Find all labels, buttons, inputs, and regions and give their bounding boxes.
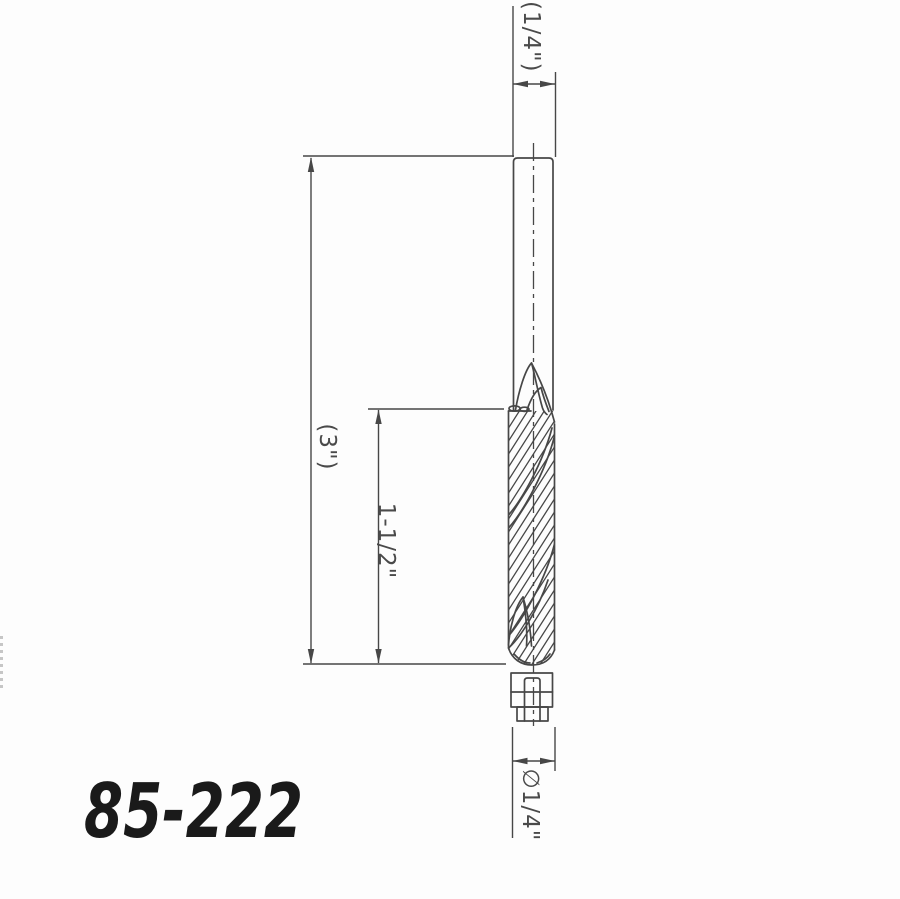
drawing-canvas: (1/4") (3") 1-1/2" ∅1/4" 85-222: [0, 0, 900, 899]
overall-length-dimension: [308, 157, 314, 664]
flute-length-label: 1-1/2": [374, 499, 398, 583]
router-bit-drawing: [0, 0, 900, 899]
hex-nut: [517, 707, 548, 721]
tip-diameter-label: ∅1/4": [518, 765, 542, 845]
tip-diameter-dimension: [513, 758, 556, 764]
shank-diameter-label: (1/4"): [519, 1, 543, 71]
part-number: 85-222: [84, 774, 303, 849]
scan-artifact: [0, 636, 3, 688]
shank-diameter-dimension: [513, 81, 555, 87]
overall-length-label: (3"): [315, 417, 339, 477]
